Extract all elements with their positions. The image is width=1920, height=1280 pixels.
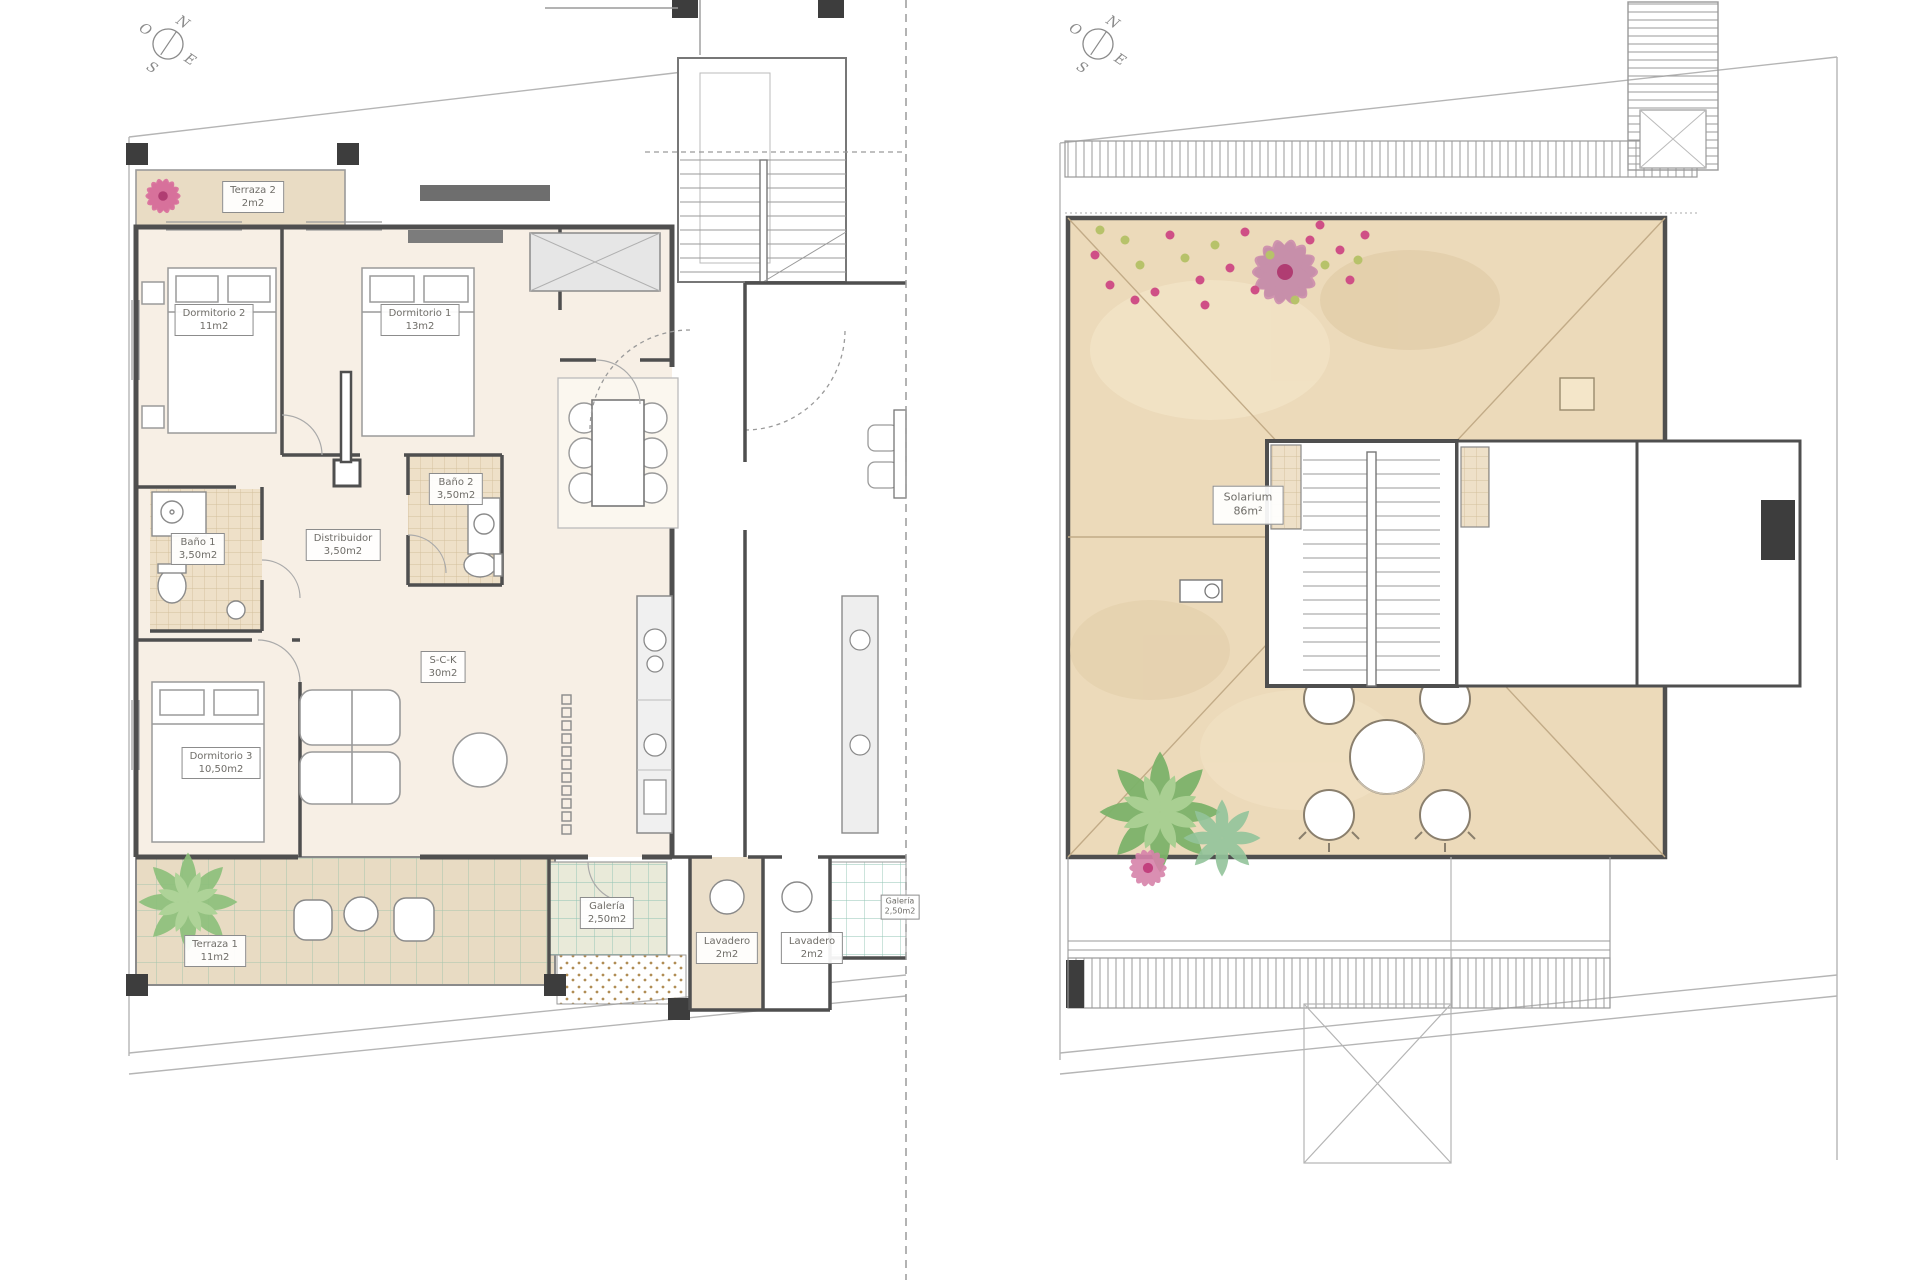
plan-drawing: N E S O bbox=[0, 0, 1920, 1280]
palm-plant-small bbox=[1184, 800, 1261, 877]
compass-e: E bbox=[180, 50, 198, 70]
compass-s: S bbox=[1073, 59, 1090, 78]
room-label-galeria: Galería2,50m2 bbox=[580, 897, 634, 929]
lower-roof bbox=[1304, 857, 1451, 1163]
room-label-terraza2: Terraza 22m2 bbox=[222, 181, 284, 213]
compass-e: E bbox=[1110, 50, 1128, 70]
bed-dormitorio1 bbox=[362, 268, 474, 436]
wardrobe-dorm1 bbox=[408, 230, 503, 243]
wall-stub bbox=[341, 372, 351, 462]
compass-n: N bbox=[172, 12, 193, 33]
room-label-dormitorio2: Dormitorio 211m2 bbox=[175, 304, 254, 336]
floor-plan-sheet: N E S O bbox=[0, 0, 1920, 1280]
vent bbox=[1180, 580, 1222, 602]
bath2-fixtures bbox=[464, 498, 502, 577]
room-label-salon: S-C-K30m2 bbox=[421, 651, 466, 683]
room-label-galeria-neighbour: Galería2,50m2 bbox=[881, 895, 920, 920]
compass-s: S bbox=[143, 59, 160, 78]
dining-set bbox=[558, 378, 678, 528]
room-label-solarium: Solarium86m² bbox=[1213, 486, 1284, 525]
room-label-lavadero2: Lavadero2m2 bbox=[781, 932, 843, 964]
compass-n: N bbox=[1102, 12, 1123, 33]
pergola-top bbox=[1065, 141, 1697, 177]
door-pivot bbox=[334, 460, 360, 486]
left-plan: N E S O bbox=[120, 0, 906, 1074]
room-label-bano2: Baño 23,50m2 bbox=[429, 473, 483, 505]
room-label-dormitorio3: Dormitorio 310,50m2 bbox=[182, 747, 261, 779]
compass-rose: N E S O bbox=[120, 0, 213, 93]
top-wall-insert bbox=[420, 185, 550, 201]
room-label-bano1: Baño 13,50m2 bbox=[171, 533, 225, 565]
compass-o: O bbox=[1066, 20, 1085, 40]
room-label-distribuidor: Distribuidor3,50m2 bbox=[306, 529, 381, 561]
elevator-shaft bbox=[1628, 2, 1718, 170]
roof-box bbox=[1560, 378, 1594, 410]
room-label-dormitorio1: Dormitorio 113m2 bbox=[381, 304, 460, 336]
gravel-strip bbox=[557, 955, 686, 1004]
side-rooms bbox=[1457, 441, 1800, 686]
room-label-terraza1: Terraza 111m2 bbox=[184, 935, 246, 967]
kitchen bbox=[637, 596, 672, 833]
compass-o: O bbox=[136, 20, 155, 40]
room-label-lavadero1: Lavadero2m2 bbox=[696, 932, 758, 964]
stair-core bbox=[1267, 441, 1457, 686]
round-table bbox=[453, 733, 507, 787]
compass-rose-right: N E S O bbox=[1050, 0, 1143, 93]
right-plan: N E S O bbox=[1050, 0, 1837, 1163]
